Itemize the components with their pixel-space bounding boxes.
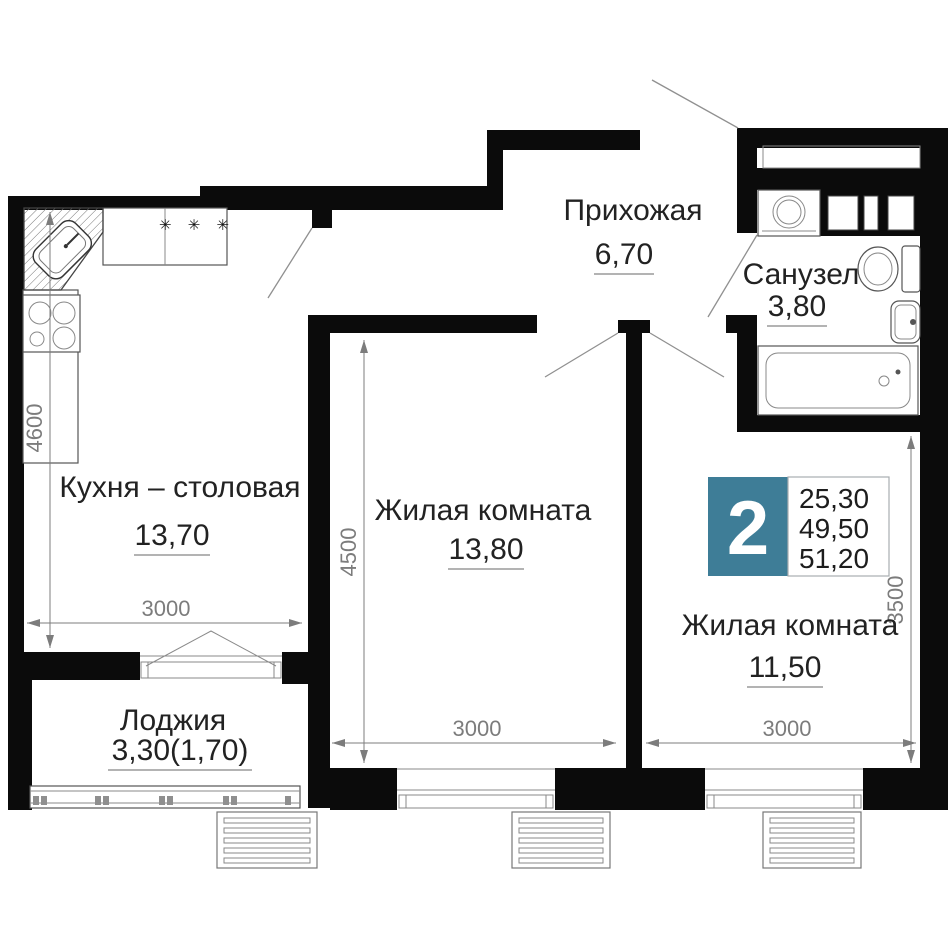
radiator-basket (217, 812, 317, 868)
wall-segment (737, 128, 757, 233)
window (397, 769, 555, 808)
room-area: 11,50 (749, 651, 822, 684)
dim-value: 4600 (22, 404, 47, 453)
wall-segment (282, 652, 330, 680)
badge-area-living: 25,30 (799, 483, 869, 514)
badge-rooms-count: 2 (727, 486, 769, 571)
floor-plan: ✳ ✳ ✳ (0, 0, 950, 950)
washing-machine (758, 190, 820, 236)
room1-door-swing (545, 333, 618, 377)
room-name: Прихожая (563, 194, 702, 227)
window (705, 769, 863, 808)
room-name: Жилая комната (682, 609, 899, 642)
wall-segment (555, 768, 705, 810)
wall-segment (200, 186, 503, 210)
wall-segment (737, 415, 920, 432)
room-label-living1: Жилая комната 13,80 (375, 494, 592, 569)
radiator-basket (512, 812, 610, 868)
room-label-kitchen: Кухня – столовая 13,70 (59, 471, 300, 555)
shaft-niche (763, 146, 920, 168)
room-label-bathroom: Санузел 3,80 (743, 258, 860, 326)
vent-opening (828, 196, 858, 230)
wall-segment (330, 315, 537, 333)
floor-plan-page: ✳ ✳ ✳ (0, 0, 950, 950)
dim-value: 3000 (453, 716, 502, 741)
wall-segment (757, 168, 920, 190)
dimension-room2-width: 3000 (646, 716, 916, 747)
wall-segment (308, 315, 330, 808)
badge-area-usable: 49,50 (799, 513, 869, 544)
room-name: Жилая комната (375, 494, 592, 527)
wall-segment (920, 128, 948, 810)
room2-door-swing (650, 333, 724, 377)
vent-opening (888, 196, 914, 230)
wall-segment (487, 130, 640, 150)
dimension-kitchen-width: 3000 (27, 596, 302, 627)
room-label-loggia: Лоджия 3,30(1,70) (108, 704, 252, 770)
dimension-room1-width: 3000 (332, 716, 616, 747)
dimension-room1-height: 4500 (336, 340, 368, 763)
wall-segment (626, 333, 642, 768)
room-area: 13,70 (134, 519, 209, 552)
entrance-door-swing (652, 80, 738, 128)
dim-value: 3000 (142, 596, 191, 621)
wall-segment (737, 128, 948, 148)
area-badge: 2 25,30 49,50 51,20 (708, 477, 889, 576)
wall-segment (726, 315, 737, 333)
wall-segment (312, 210, 332, 228)
room-label-hallway: Прихожая 6,70 (563, 194, 702, 274)
room-name: Санузел (743, 258, 860, 291)
vent-opening (864, 196, 878, 230)
balcony-door (140, 631, 282, 678)
room-label-living2: Жилая комната 11,50 (682, 609, 899, 687)
dim-value: 4500 (336, 528, 361, 577)
room-name: Лоджия (120, 704, 226, 737)
wall-segment (330, 768, 397, 810)
toilet (858, 246, 920, 292)
badge-area-total: 51,20 (799, 543, 869, 574)
room-area: 13,80 (448, 533, 523, 566)
wall-segment (618, 320, 650, 333)
corner-sink (24, 208, 103, 290)
stove-marks: ✳ ✳ ✳ (159, 217, 235, 234)
wall-segment (737, 315, 757, 432)
stove (23, 295, 80, 352)
room-name: Кухня – столовая (59, 471, 300, 504)
bathtub (758, 346, 918, 415)
loggia-glazing (30, 786, 300, 808)
radiator-basket (763, 812, 861, 868)
wall-segment (863, 768, 920, 810)
wall-segment (24, 652, 140, 680)
room-area: 3,80 (768, 290, 826, 323)
kitchen-door-swing (268, 228, 312, 298)
dim-value: 3000 (763, 716, 812, 741)
room-area: 6,70 (595, 238, 653, 271)
room-area: 3,30(1,70) (112, 734, 249, 767)
wash-basin (891, 301, 920, 343)
